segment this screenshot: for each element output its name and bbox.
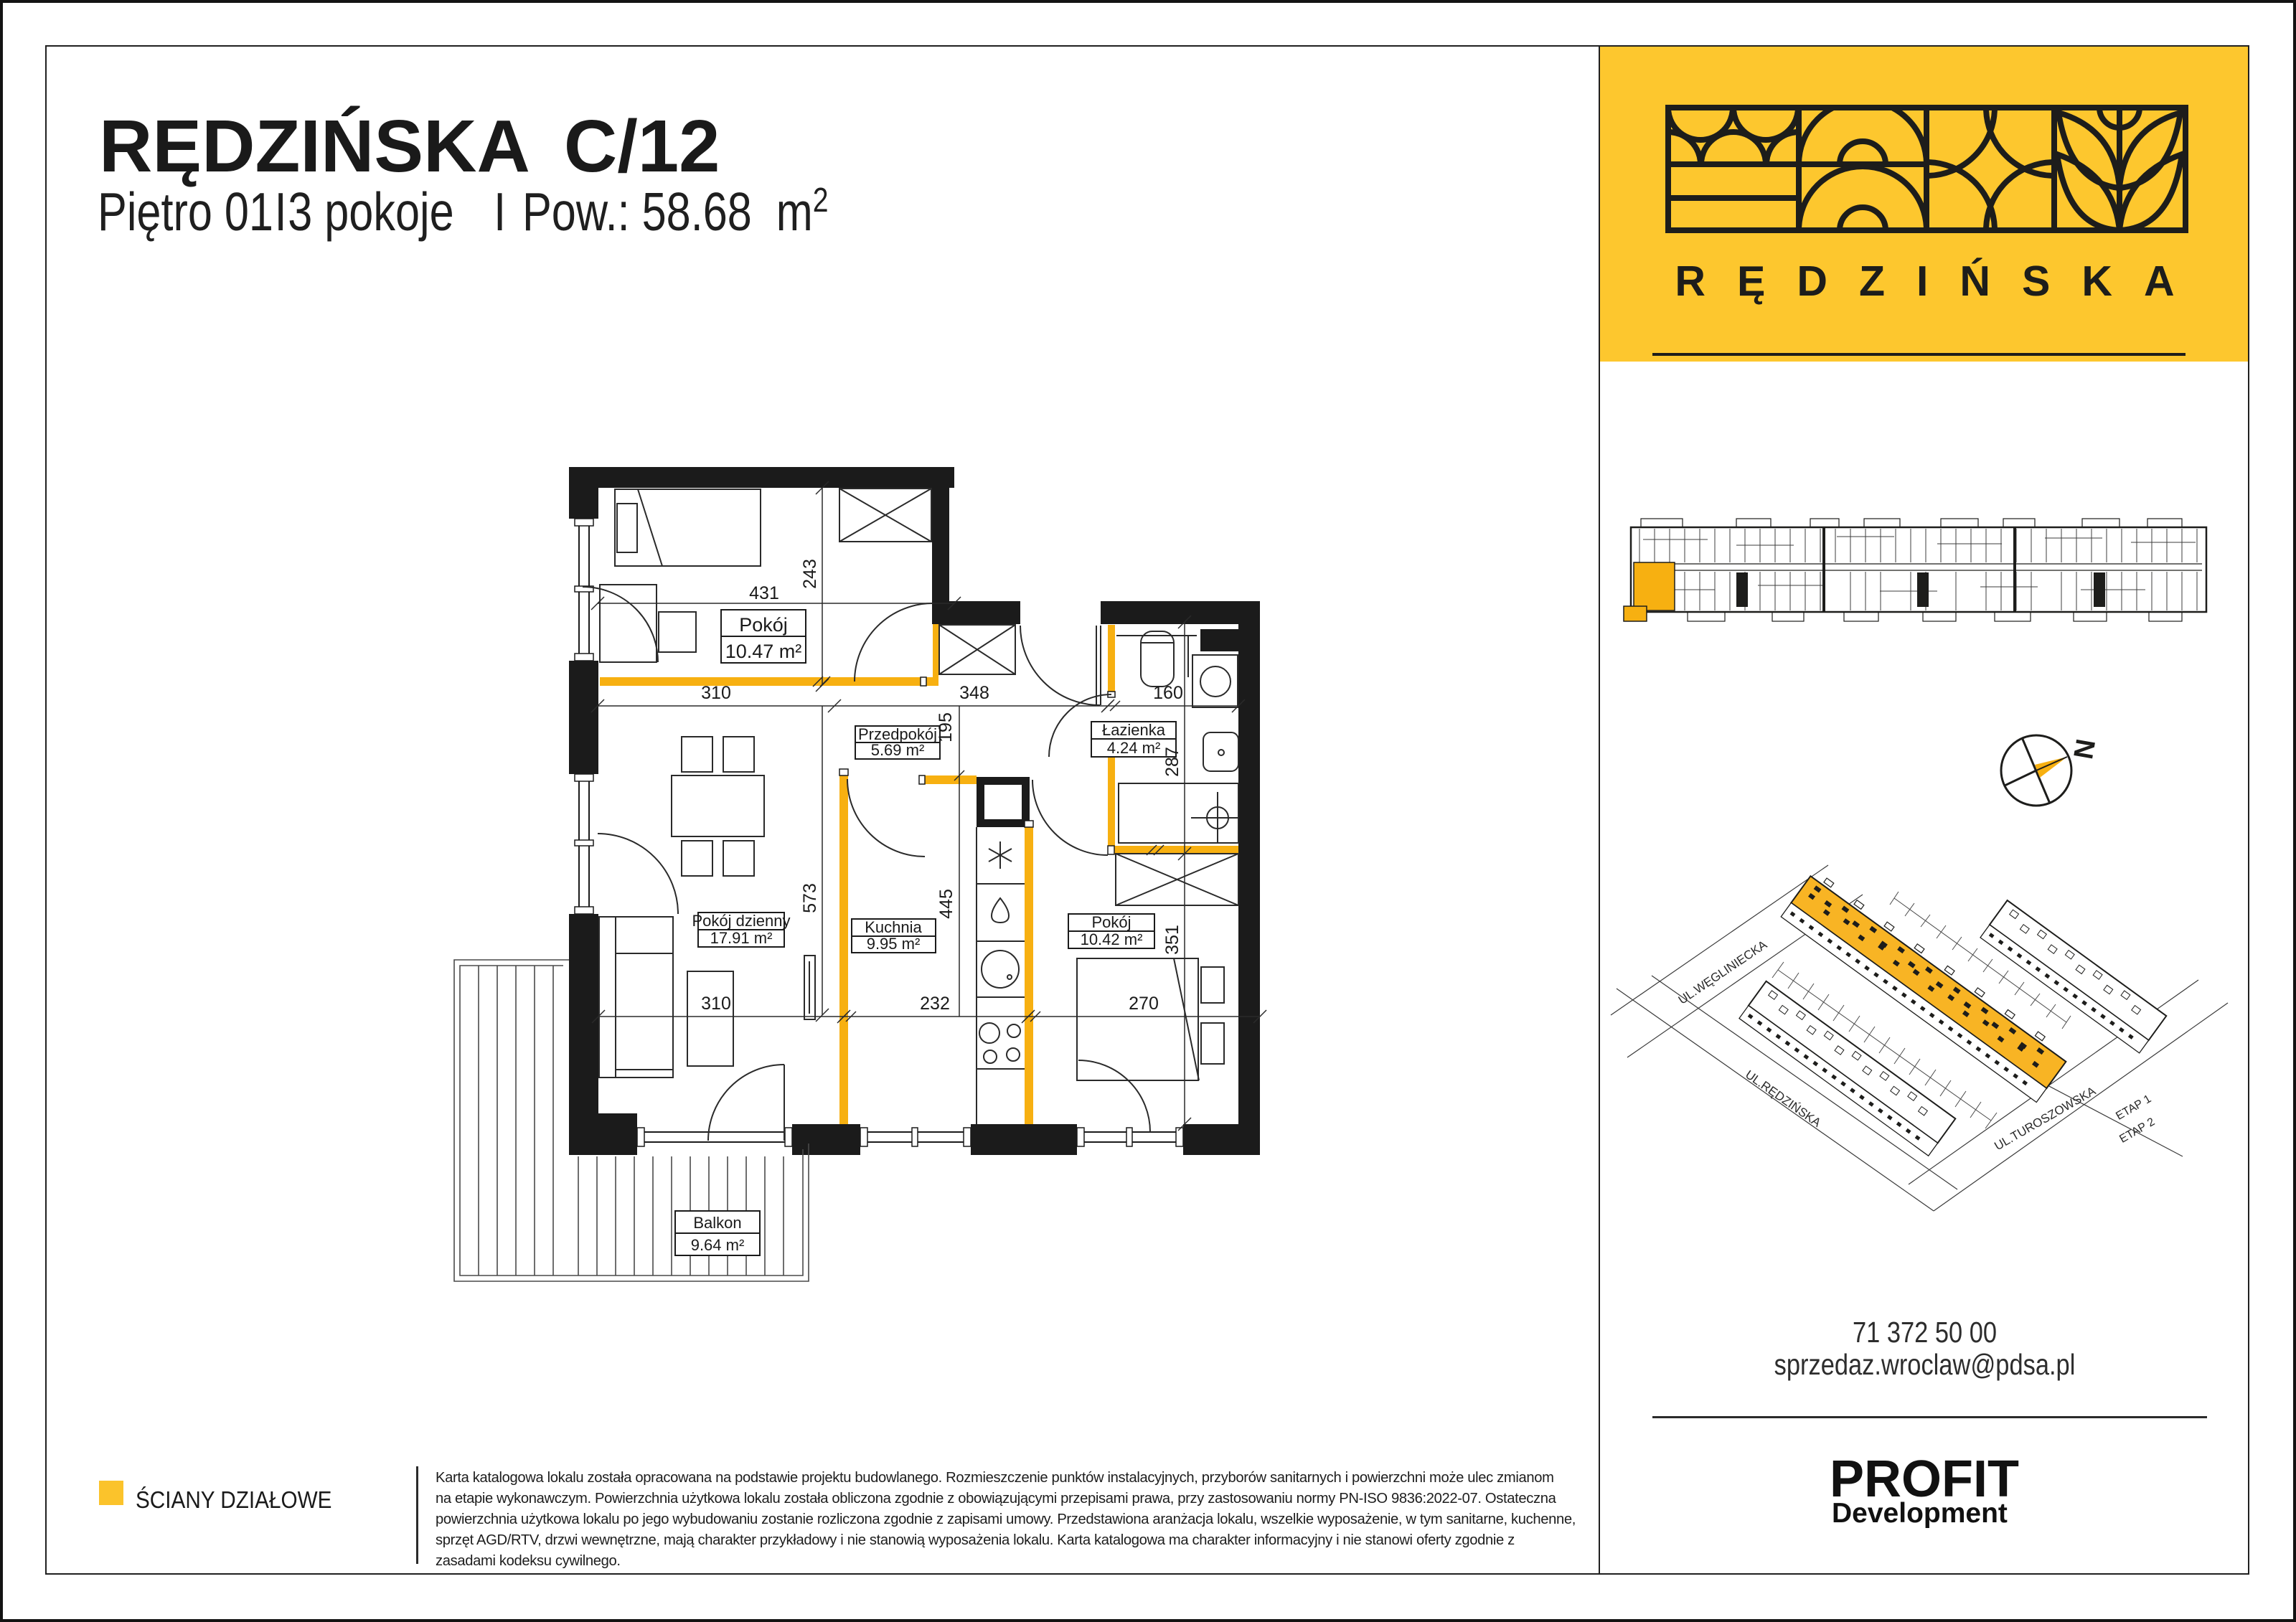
svg-text:Pokój dzienny: Pokój dzienny — [692, 912, 791, 930]
svg-text:270: 270 — [1129, 994, 1159, 1014]
svg-text:Pokój: Pokój — [739, 614, 788, 636]
svg-text:9.64 m²: 9.64 m² — [691, 1236, 745, 1254]
svg-text:348: 348 — [959, 683, 989, 703]
svg-text:N: N — [2067, 737, 2100, 761]
svg-text:310: 310 — [701, 994, 731, 1014]
svg-text:232: 232 — [920, 994, 950, 1014]
svg-text:431: 431 — [749, 583, 779, 603]
svg-text:4.24 m²: 4.24 m² — [1107, 739, 1161, 757]
svg-text:9.95 m²: 9.95 m² — [867, 935, 921, 953]
svg-text:351: 351 — [1162, 925, 1182, 955]
svg-text:17.91 m²: 17.91 m² — [710, 929, 773, 947]
svg-text:310: 310 — [701, 683, 731, 703]
svg-text:Łazienka: Łazienka — [1102, 721, 1166, 739]
svg-text:5.69 m²: 5.69 m² — [871, 741, 925, 759]
svg-text:Kuchnia: Kuchnia — [865, 918, 922, 936]
svg-text:Balkon: Balkon — [693, 1214, 741, 1232]
svg-text:243: 243 — [800, 559, 820, 589]
svg-text:UL.TUROSZOWSKA: UL.TUROSZOWSKA — [1992, 1084, 2098, 1154]
svg-text:445: 445 — [936, 889, 956, 919]
svg-text:573: 573 — [800, 883, 820, 913]
svg-text:Pokój: Pokój — [1091, 913, 1131, 931]
svg-text:287: 287 — [1162, 747, 1182, 777]
svg-text:10.42 m²: 10.42 m² — [1081, 930, 1143, 948]
svg-text:195: 195 — [936, 712, 956, 742]
svg-text:10.47 m²: 10.47 m² — [725, 641, 802, 662]
svg-text:UL.RĘDZIŃSKA: UL.RĘDZIŃSKA — [1743, 1067, 1824, 1130]
svg-text:160: 160 — [1153, 683, 1183, 703]
